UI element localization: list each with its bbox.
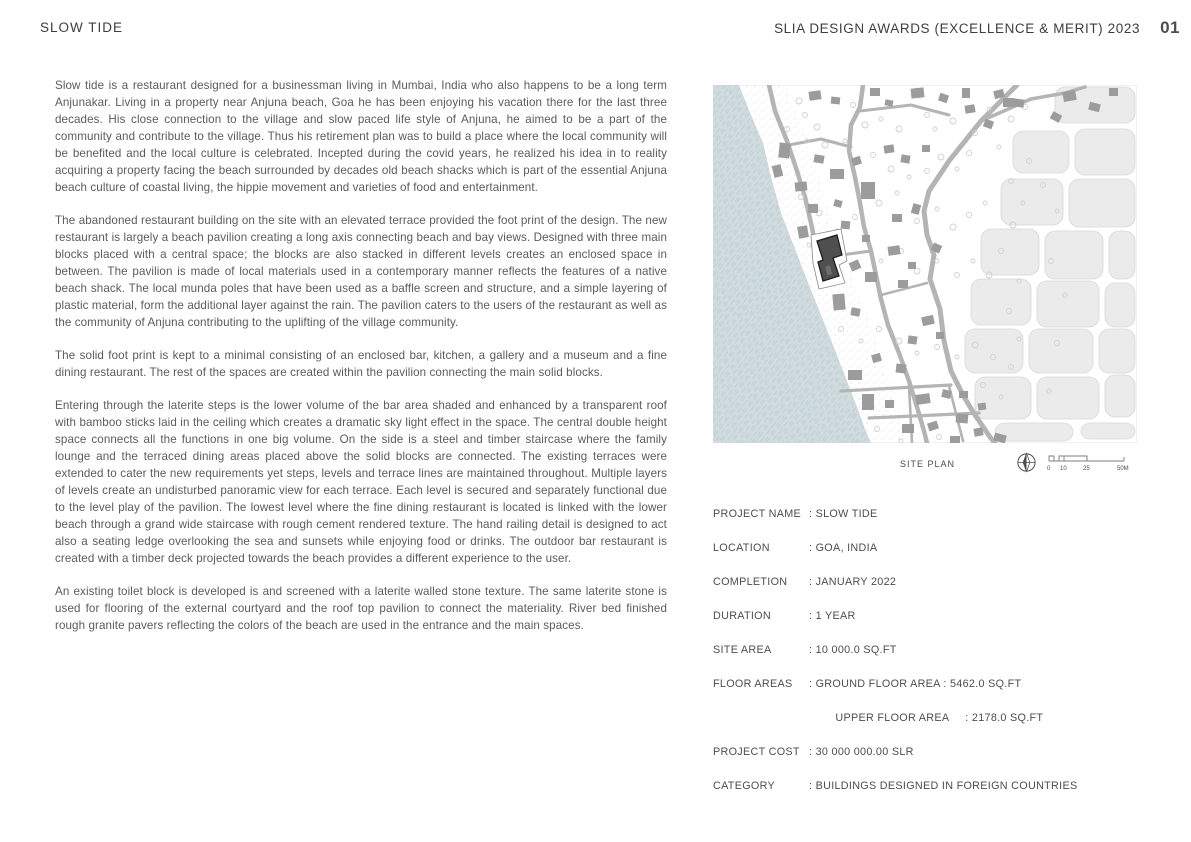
north-arrow-icon: [1015, 451, 1038, 479]
detail-value: : GOA, INDIA: [809, 540, 1153, 557]
site-plan-map: [713, 85, 1137, 443]
upper-floor-area: UPPER FLOOR AREA : 2178.0 SQ.FT: [829, 712, 1044, 724]
scale-bar: 0 10 25 50M: [1046, 449, 1138, 480]
detail-label: DURATION: [713, 608, 809, 625]
scale-label-0: 0: [1047, 466, 1051, 472]
paragraph: An existing toilet block is developed is…: [55, 583, 667, 634]
detail-value: : 10 000.0 SQ.FT: [809, 642, 1153, 659]
scale-label-25: 25: [1083, 466, 1090, 472]
paragraph: Entering through the laterite steps is t…: [55, 397, 667, 567]
paragraph: Slow tide is a restaurant designed for a…: [55, 77, 667, 196]
detail-label: FLOOR AREAS: [713, 676, 809, 727]
detail-row-category: CATEGORY : BUILDINGS DESIGNED IN FOREIGN…: [713, 778, 1153, 795]
detail-row-floor-areas: FLOOR AREAS : GROUND FLOOR AREA : 5462.0…: [713, 676, 1153, 727]
detail-value: : SLOW TIDE: [809, 506, 1153, 523]
project-description: Slow tide is a restaurant designed for a…: [55, 77, 667, 650]
detail-value: : GROUND FLOOR AREA : 5462.0 SQ.FT UPPER…: [809, 676, 1153, 727]
scale-label-50m: 50M: [1117, 466, 1129, 472]
detail-value: : 1 YEAR: [809, 608, 1153, 625]
site-plan-caption: SITE PLAN: [900, 459, 955, 469]
detail-label: COMPLETION: [713, 574, 809, 591]
detail-row-location: LOCATION : GOA, INDIA: [713, 540, 1153, 557]
detail-row-site-area: SITE AREA : 10 000.0 SQ.FT: [713, 642, 1153, 659]
header-right: SLIA DESIGN AWARDS (EXCELLENCE & MERIT) …: [700, 18, 1191, 38]
detail-row-project-name: PROJECT NAME : SLOW TIDE: [713, 506, 1153, 523]
detail-value: : BUILDINGS DESIGNED IN FOREIGN COUNTRIE…: [809, 778, 1153, 795]
detail-row-completion: COMPLETION : JANUARY 2022: [713, 574, 1153, 591]
detail-value: : 30 000 000.00 SLR: [809, 744, 1153, 761]
detail-row-duration: DURATION : 1 YEAR: [713, 608, 1153, 625]
awards-title: SLIA DESIGN AWARDS (EXCELLENCE & MERIT) …: [774, 21, 1140, 36]
project-details: PROJECT NAME : SLOW TIDE LOCATION : GOA,…: [713, 506, 1153, 812]
detail-label: PROJECT NAME: [713, 506, 809, 523]
site-plan-drawing: [713, 85, 1137, 443]
detail-label: LOCATION: [713, 540, 809, 557]
detail-label: CATEGORY: [713, 778, 809, 795]
paragraph: The abandoned restaurant building on the…: [55, 212, 667, 331]
page-number: 01: [1160, 18, 1180, 38]
detail-value: : JANUARY 2022: [809, 574, 1153, 591]
board-page: SLOW TIDE SLIA DESIGN AWARDS (EXCELLENCE…: [0, 0, 1191, 842]
detail-label: PROJECT COST: [713, 744, 809, 761]
page-title: SLOW TIDE: [40, 20, 123, 35]
detail-label: SITE AREA: [713, 642, 809, 659]
detail-row-project-cost: PROJECT COST : 30 000 000.00 SLR: [713, 744, 1153, 761]
ground-floor-area: : GROUND FLOOR AREA : 5462.0 SQ.FT: [809, 678, 1021, 690]
paragraph: The solid foot print is kept to a minima…: [55, 347, 667, 381]
scale-label-10: 10: [1060, 466, 1067, 472]
